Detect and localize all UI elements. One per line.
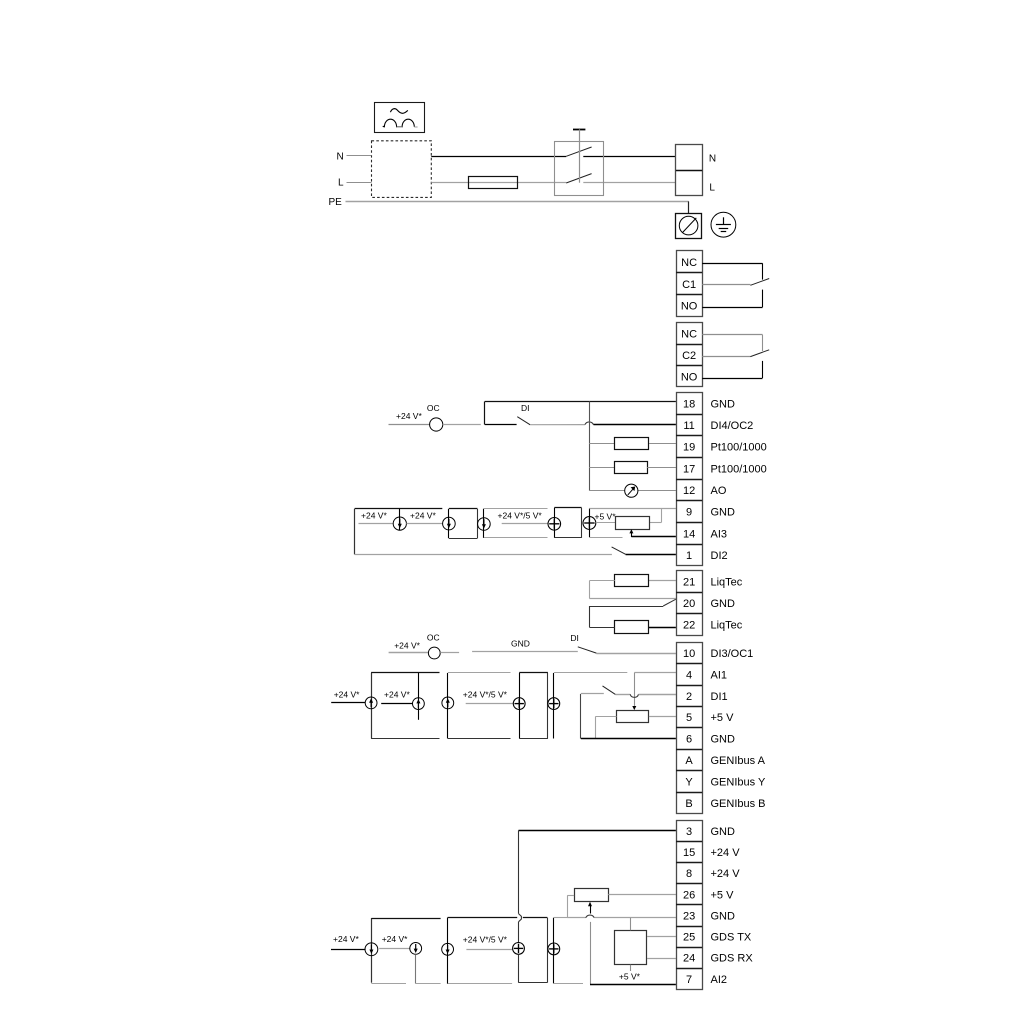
svg-text:+24 V*/5 V*: +24 V*/5 V* [463,690,508,700]
svg-text:GND: GND [711,910,736,922]
svg-text:GENIbus A: GENIbus A [711,755,766,767]
svg-text:DI2: DI2 [711,550,728,562]
svg-text:DI1: DI1 [711,691,728,703]
svg-text:+24 V*: +24 V* [384,689,410,699]
svg-text:LiqTec: LiqTec [711,576,743,588]
svg-text:17: 17 [683,463,695,475]
svg-text:B: B [685,798,692,810]
svg-text:A: A [685,755,693,767]
svg-text:GENIbus Y: GENIbus Y [711,777,766,789]
svg-text:+24 V*: +24 V* [382,934,408,944]
svg-text:DI4/OC2: DI4/OC2 [711,420,754,432]
svg-text:+24 V: +24 V [711,868,741,880]
svg-text:5: 5 [686,712,692,724]
svg-text:GND: GND [711,598,736,610]
svg-text:AI3: AI3 [711,528,728,540]
svg-text:2: 2 [686,691,692,703]
svg-text:GND: GND [511,639,530,649]
svg-text:1: 1 [686,550,692,562]
svg-text:N: N [709,153,716,164]
svg-text:+24 V*: +24 V* [394,640,420,650]
svg-text:DI3/OC1: DI3/OC1 [711,648,754,660]
svg-text:15: 15 [683,847,695,859]
svg-text:C2: C2 [682,350,696,362]
svg-text:Y: Y [685,777,693,789]
svg-text:Pt100/1000: Pt100/1000 [711,463,767,475]
svg-text:AO: AO [711,485,727,497]
svg-text:N: N [337,152,344,163]
svg-text:4: 4 [686,669,692,681]
svg-text:LiqTec: LiqTec [711,619,743,631]
svg-text:+24 V*: +24 V* [361,511,387,521]
svg-text:+5 V: +5 V [711,712,735,724]
svg-text:GDS RX: GDS RX [711,953,754,965]
svg-text:NC: NC [681,329,697,341]
svg-text:14: 14 [683,528,695,540]
svg-text:+24 V: +24 V [711,847,741,859]
svg-text:19: 19 [683,442,695,454]
svg-text:+5 V*: +5 V* [595,511,617,521]
svg-text:OC: OC [427,632,440,642]
svg-text:20: 20 [683,598,695,610]
svg-text:C1: C1 [682,279,696,291]
svg-text:GND: GND [711,398,736,410]
svg-text:+24 V*: +24 V* [333,934,359,944]
svg-text:+24 V*: +24 V* [410,511,436,521]
svg-text:PE: PE [329,197,343,208]
svg-text:12: 12 [683,485,695,497]
svg-text:GDS TX: GDS TX [711,932,752,944]
svg-text:GND: GND [711,734,736,746]
svg-text:DI: DI [521,403,530,413]
svg-text:+5 V: +5 V [711,889,735,901]
svg-text:NC: NC [681,257,697,269]
svg-text:NO: NO [681,371,698,383]
svg-text:+24 V*/5 V*: +24 V*/5 V* [498,510,543,520]
svg-text:GENIbus B: GENIbus B [711,798,766,810]
svg-text:3: 3 [686,826,692,838]
svg-text:L: L [338,177,344,188]
svg-text:+24 V*: +24 V* [396,411,422,421]
svg-text:7: 7 [686,974,692,986]
svg-text:23: 23 [683,910,695,922]
svg-text:AI1: AI1 [711,669,728,681]
svg-text:10: 10 [683,648,695,660]
svg-text:21: 21 [683,576,695,588]
svg-text:OC: OC [427,403,440,413]
svg-text:8: 8 [686,868,692,880]
svg-text:+24 V*/5 V*: +24 V*/5 V* [463,934,508,944]
svg-text:+24 V*: +24 V* [334,689,360,699]
svg-text:11: 11 [683,420,694,432]
svg-text:GND: GND [711,507,736,519]
svg-text:Pt100/1000: Pt100/1000 [711,442,767,454]
svg-text:NO: NO [681,301,698,313]
svg-text:DI: DI [570,633,579,643]
svg-text:25: 25 [683,932,695,944]
svg-text:22: 22 [683,619,695,631]
svg-text:24: 24 [683,953,695,965]
svg-text:6: 6 [686,734,692,746]
svg-text:GND: GND [711,826,736,838]
svg-text:9: 9 [686,507,692,519]
svg-text:+5 V*: +5 V* [619,971,641,981]
svg-text:26: 26 [683,889,695,901]
svg-text:AI2: AI2 [711,974,728,986]
svg-text:18: 18 [683,398,695,410]
svg-text:L: L [709,182,715,193]
